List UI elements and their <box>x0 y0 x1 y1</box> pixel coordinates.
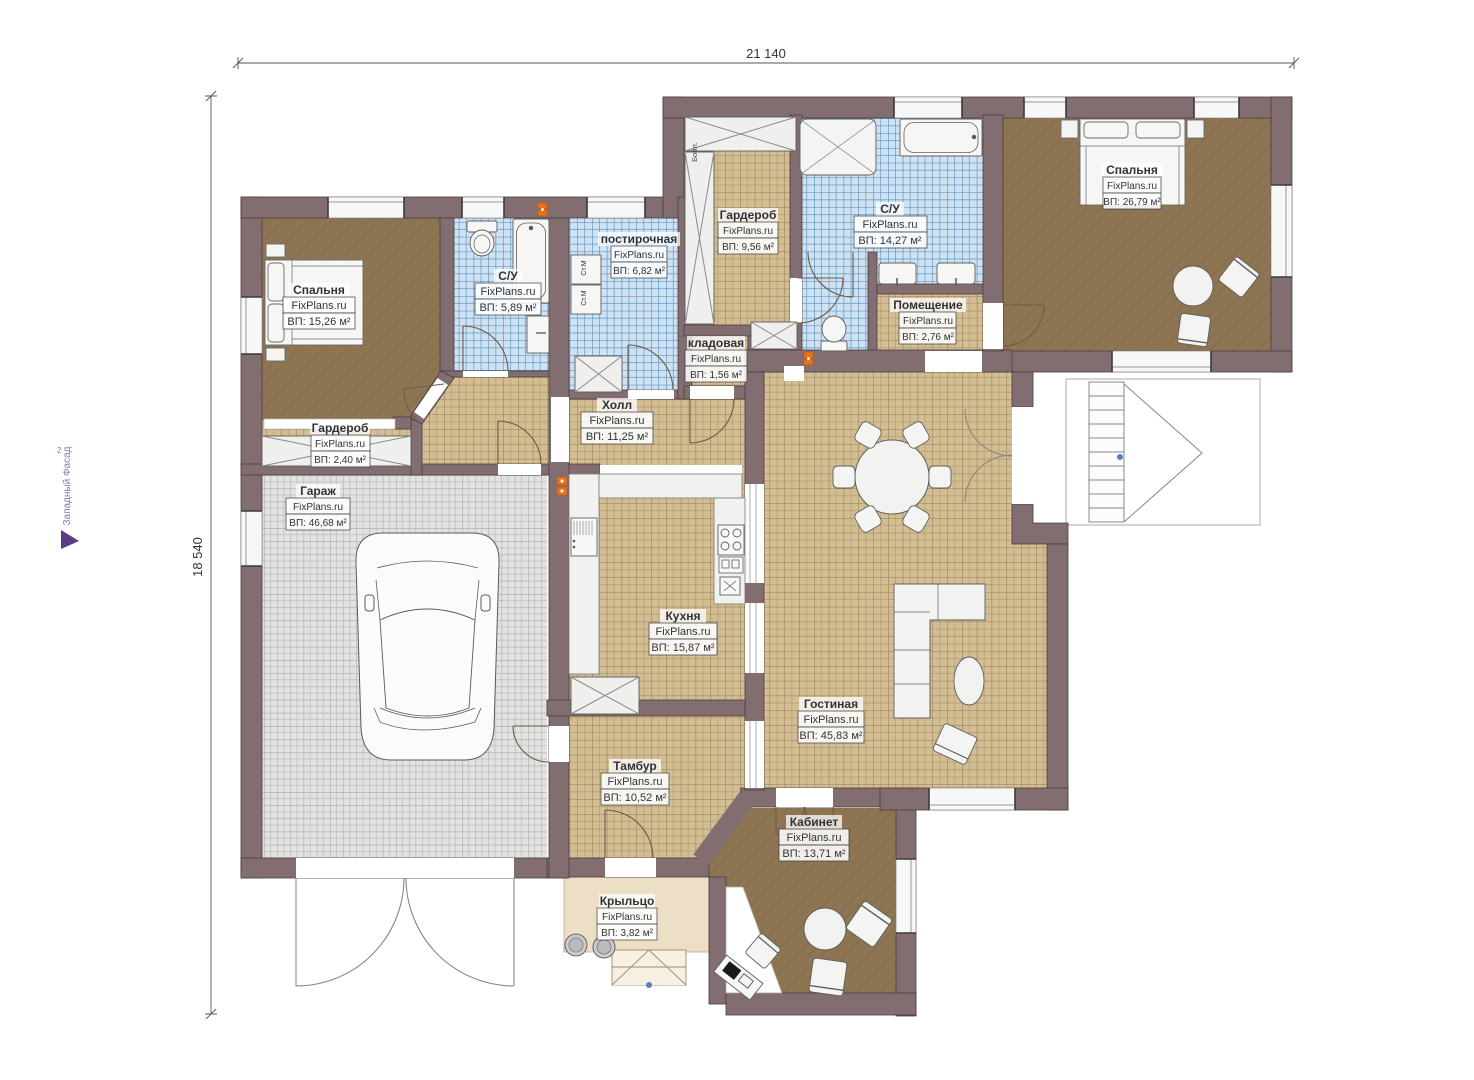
svg-text:FixPlans.ru: FixPlans.ru <box>786 832 841 844</box>
svg-text:FixPlans.ru: FixPlans.ru <box>291 300 346 312</box>
svg-text:ВП: 6,82 м²: ВП: 6,82 м² <box>613 266 666 277</box>
svg-text:Гардероб: Гардероб <box>312 421 369 435</box>
svg-text:FixPlans.ru: FixPlans.ru <box>691 354 741 365</box>
svg-text:Западный Фасад: Западный Фасад <box>62 446 73 525</box>
svg-text:Гардероб: Гардероб <box>720 208 777 222</box>
svg-text:ВП: 11,25 м²: ВП: 11,25 м² <box>586 431 649 443</box>
svg-text:2: 2 <box>57 446 62 455</box>
svg-text:FixPlans.ru: FixPlans.ru <box>723 226 773 237</box>
svg-text:FixPlans.ru: FixPlans.ru <box>655 626 710 638</box>
svg-text:Кабинет: Кабинет <box>790 815 839 829</box>
svg-text:ВП: 2,76 м²: ВП: 2,76 м² <box>902 332 955 343</box>
svg-text:ВП: 15,87 м²: ВП: 15,87 м² <box>651 642 715 654</box>
svg-text:Бойл.: Бойл. <box>690 142 699 162</box>
svg-text:Тамбур: Тамбур <box>613 759 657 773</box>
svg-text:ВП: 45,83 м²: ВП: 45,83 м² <box>799 730 863 742</box>
svg-text:ВП: 5,89 м²: ВП: 5,89 м² <box>479 302 536 314</box>
svg-text:Помещение: Помещение <box>893 298 963 312</box>
svg-text:ВП: 15,26 м²: ВП: 15,26 м² <box>287 316 351 328</box>
svg-text:FixPlans.ru: FixPlans.ru <box>803 714 858 726</box>
svg-text:Крыльцо: Крыльцо <box>600 894 655 908</box>
svg-text:кладовая: кладовая <box>688 336 744 350</box>
svg-text:С/У: С/У <box>880 202 900 216</box>
svg-text:ВП: 14,27 м²: ВП: 14,27 м² <box>858 235 922 247</box>
svg-text:Спальня: Спальня <box>1106 163 1158 177</box>
svg-text:FixPlans.ru: FixPlans.ru <box>607 776 662 788</box>
svg-text:ВП: 13,71 м²: ВП: 13,71 м² <box>782 848 846 860</box>
svg-text:ВП: 10,52 м²: ВП: 10,52 м² <box>603 792 667 804</box>
svg-text:FixPlans.ru: FixPlans.ru <box>589 415 644 427</box>
svg-text:Гостиная: Гостиная <box>804 697 858 711</box>
svg-text:21 140: 21 140 <box>746 46 786 61</box>
svg-text:Гараж: Гараж <box>300 484 336 498</box>
svg-text:Холл: Холл <box>602 398 632 412</box>
svg-text:FixPlans.ru: FixPlans.ru <box>480 286 535 298</box>
svg-text:Ст.М: Ст.М <box>581 260 588 275</box>
svg-text:постирочная: постирочная <box>601 232 678 246</box>
svg-text:FixPlans.ru: FixPlans.ru <box>614 250 664 261</box>
svg-text:ВП: 9,56 м²: ВП: 9,56 м² <box>722 242 775 253</box>
svg-text:ВП: 26,79 м²: ВП: 26,79 м² <box>1103 197 1161 208</box>
svg-text:ВП: 2,40 м²: ВП: 2,40 м² <box>314 455 367 466</box>
svg-text:Кухня: Кухня <box>665 609 700 623</box>
svg-text:18 540: 18 540 <box>190 537 205 577</box>
svg-text:FixPlans.ru: FixPlans.ru <box>602 912 652 923</box>
svg-text:С/У: С/У <box>498 269 518 283</box>
svg-text:FixPlans.ru: FixPlans.ru <box>862 219 917 231</box>
svg-text:Спальня: Спальня <box>293 283 345 297</box>
svg-text:FixPlans.ru: FixPlans.ru <box>293 502 343 513</box>
svg-text:FixPlans.ru: FixPlans.ru <box>315 439 365 450</box>
svg-text:ВП: 1,56 м²: ВП: 1,56 м² <box>690 370 743 381</box>
svg-text:Ст.М: Ст.М <box>581 290 588 305</box>
svg-text:FixPlans.ru: FixPlans.ru <box>1107 181 1157 192</box>
svg-text:ВП: 3,82 м²: ВП: 3,82 м² <box>601 928 654 939</box>
svg-text:ВП: 46,68 м²: ВП: 46,68 м² <box>289 518 347 529</box>
svg-text:FixPlans.ru: FixPlans.ru <box>903 316 953 327</box>
